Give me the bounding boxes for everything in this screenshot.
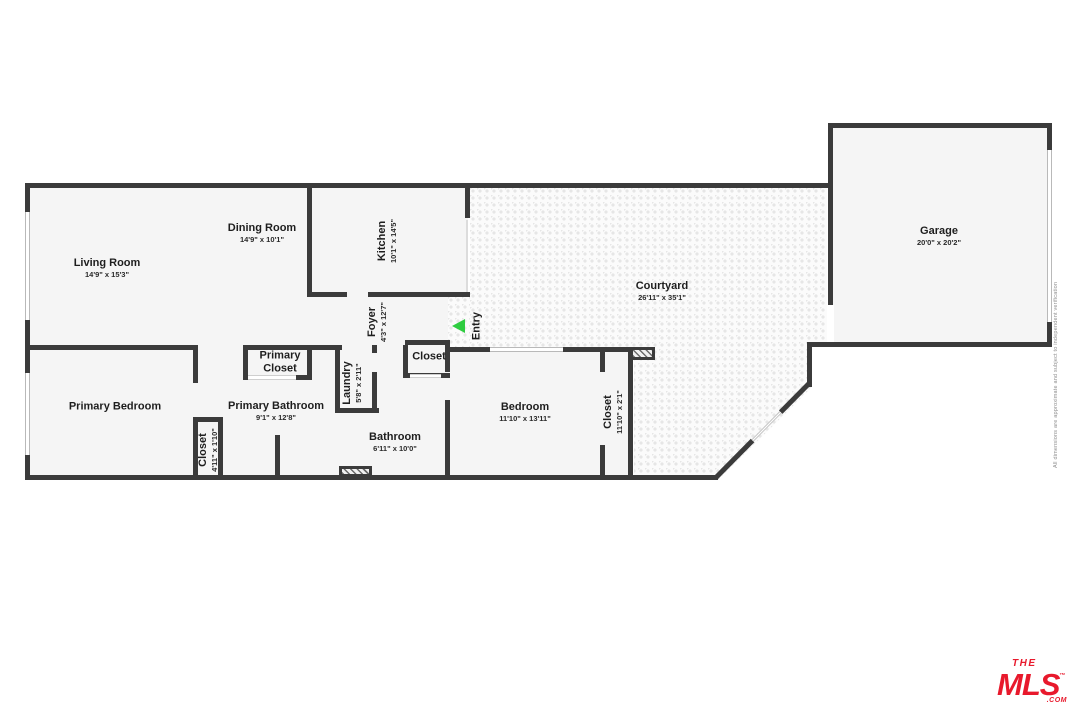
wall [628,347,633,475]
room-label-primary-closet: Primary Closet [248,349,312,374]
room-label-courtyard: Courtyard 26'11" x 35'1" [636,280,689,302]
room-label-foyer: Foyer 4'3" x 12'7" [366,302,388,342]
window [25,212,30,320]
entry-label: Entry [471,312,484,340]
window [25,373,30,455]
wall [25,345,197,350]
hatched-vent [339,466,372,477]
room-label-dining-room: Dining Room 14'9" x 10'1" [228,222,296,244]
wall [335,345,340,413]
room-label-kitchen: Kitchen 10'1" x 14'5" [376,219,398,263]
wall [368,292,470,297]
wall [470,183,830,188]
wall [307,188,312,297]
wall [275,435,280,475]
wall [465,183,470,218]
door-opening [410,374,441,378]
room-label-bedroom: Bedroom 11'10" x 13'11" [499,401,551,423]
room-label-bedroom-closet: Closet 11'10" x 2'1" [602,390,624,434]
glass-door [466,220,468,292]
trademark-symbol: ™ [1059,673,1065,679]
wall [405,340,450,345]
wall [828,123,1052,128]
room-label-primary-bathroom: Primary Bathroom 9'1" x 12'8" [228,400,324,422]
wall [600,350,605,372]
the-mls-logo: THE MLS™ .COM [997,659,1069,704]
wall [372,372,377,413]
room-label-bathroom: Bathroom 6'11" x 10'0" [369,431,421,453]
wall [193,345,198,383]
room-label-hall-closet: Closet 4'11" x 1'10" [197,428,219,472]
room-label-primary-bedroom: Primary Bedroom [69,401,161,414]
wall [25,183,470,188]
disclaimer-text: All dimensions are approximate and subje… [1053,298,1059,468]
garage-door-opening [827,305,834,342]
door-opening [248,375,296,380]
room-label-entry-closet: Closet [412,351,446,364]
entry-arrow-icon [452,319,465,333]
wall [372,345,377,353]
wall [307,292,347,297]
wall [807,342,1052,347]
room-label-garage: Garage 20'0" x 20'2" [917,225,961,247]
wall [445,400,450,475]
room-label-laundry: Laundry 5'8" x 2'11" [341,361,363,404]
floor-plan: Living Room 14'9" x 15'3" Dining Room 14… [0,0,1080,720]
hatched-vent [630,347,655,360]
wall [828,128,833,305]
window [1047,150,1052,322]
room-label-living-room: Living Room 14'9" x 15'3" [74,257,141,279]
wall [403,345,408,373]
wall [600,445,605,475]
logo-mls-text: MLS™ [997,669,1069,700]
window [490,347,563,352]
